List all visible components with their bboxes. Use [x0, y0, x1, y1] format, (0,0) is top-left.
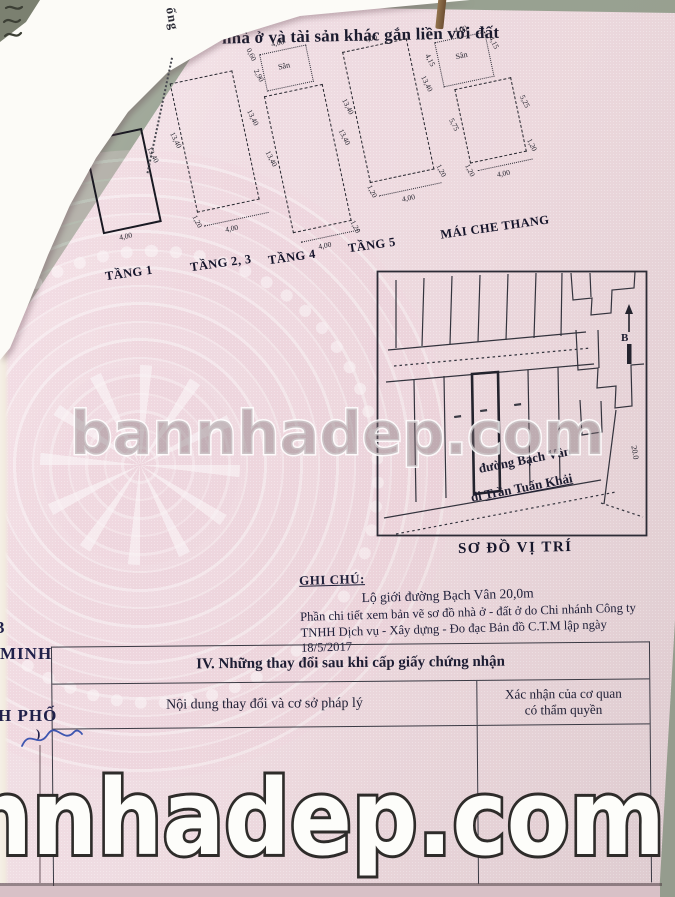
- dim-label: 4,15: [423, 52, 437, 68]
- dim-label: 4,00: [401, 192, 416, 204]
- dim-label: 4,00: [270, 37, 285, 49]
- dim-label: 1,20: [525, 137, 539, 153]
- page-underneath: [0, 886, 660, 897]
- col2-header-line2: có thẩm quyền: [525, 702, 603, 719]
- left-fragment-2: MINH: [0, 644, 52, 664]
- dim-label: 4,00: [363, 33, 378, 45]
- section4-title: IV. Những thay đổi sau khi cấp giấy chứn…: [52, 642, 649, 684]
- plan-outline: [454, 77, 527, 163]
- background-corner: [0, 0, 42, 44]
- section4-empty-cell-2: [478, 724, 651, 883]
- section4-table: IV. Những thay đổi sau khi cấp giấy chứn…: [51, 641, 652, 887]
- north-label: B: [621, 332, 629, 344]
- dim-label: 1,20: [463, 162, 477, 178]
- dim-label: 4,15: [487, 35, 501, 51]
- dim-label: 4,00: [118, 230, 133, 242]
- dim-label: 4,00: [224, 223, 239, 235]
- dim-label: 5,25: [518, 93, 532, 109]
- section4-col1-header: Nội dung thay đổi và cơ sở pháp lý: [52, 681, 477, 729]
- left-fragment-1: 3: [0, 618, 6, 638]
- dim-label: 1,20: [365, 183, 379, 199]
- left-fragment-4: ): [36, 726, 41, 742]
- section4-empty-cell-1: [53, 726, 479, 888]
- fold-text: ống: [162, 6, 182, 32]
- left-fragment-3: H PHỐ: [0, 706, 57, 726]
- certificate-photo: nhà ở và tài sản khác gắn liền với đất 1…: [0, 0, 675, 897]
- dim-label: 4,00: [453, 23, 468, 35]
- dim-label: 4,00: [496, 168, 511, 180]
- dim-label: 5,75: [447, 117, 461, 133]
- section4-col2-header: Xác nhận của cơ quan có thẩm quyền: [477, 679, 649, 724]
- col2-header-line1: Xác nhận của cơ quan: [505, 686, 622, 703]
- dim-label: 4,00: [317, 240, 332, 252]
- site-map-caption: SƠ ĐỒ VỊ TRÍ: [458, 539, 573, 558]
- dim-label: 1,20: [190, 213, 204, 229]
- dim-label: 0,60: [245, 47, 259, 63]
- page-crease-line: [39, 745, 41, 883]
- page-torn-edge: [0, 338, 9, 883]
- plan-outline: [83, 128, 162, 234]
